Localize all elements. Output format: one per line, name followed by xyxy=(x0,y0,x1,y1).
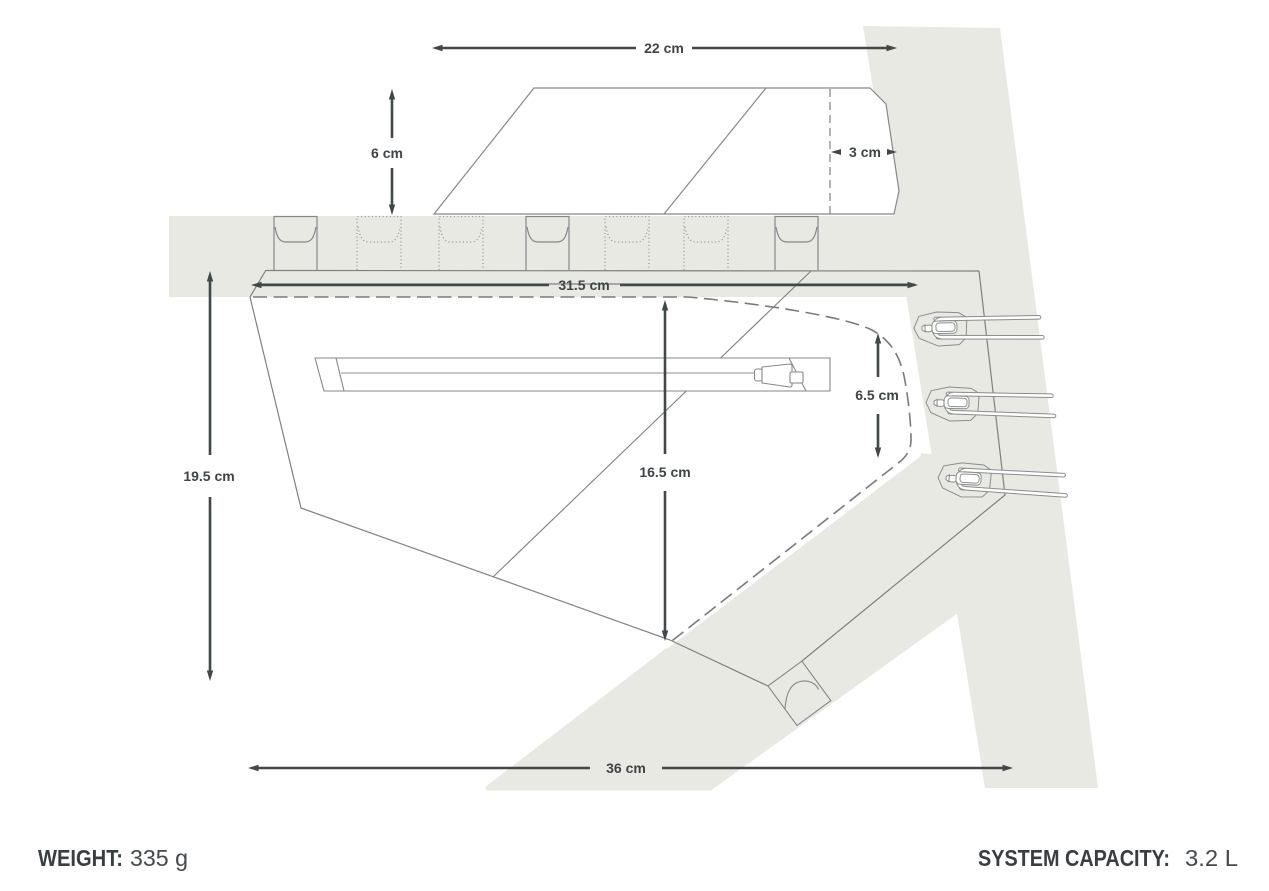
svg-text:31.5 cm: 31.5 cm xyxy=(558,277,609,293)
svg-text:16.5 cm: 16.5 cm xyxy=(639,464,690,480)
svg-text:SYSTEM CAPACITY:: SYSTEM CAPACITY: xyxy=(978,845,1170,871)
svg-text:335 g: 335 g xyxy=(130,845,188,871)
svg-text:19.5 cm: 19.5 cm xyxy=(183,468,234,484)
svg-text:6 cm: 6 cm xyxy=(371,145,403,161)
svg-text:3 cm: 3 cm xyxy=(849,144,881,160)
svg-text:3.2 L: 3.2 L xyxy=(1185,845,1238,871)
svg-text:6.5 cm: 6.5 cm xyxy=(855,387,899,403)
svg-text:22 cm: 22 cm xyxy=(644,40,684,56)
svg-text:WEIGHT:: WEIGHT: xyxy=(38,845,123,871)
svg-text:36 cm: 36 cm xyxy=(606,760,646,776)
